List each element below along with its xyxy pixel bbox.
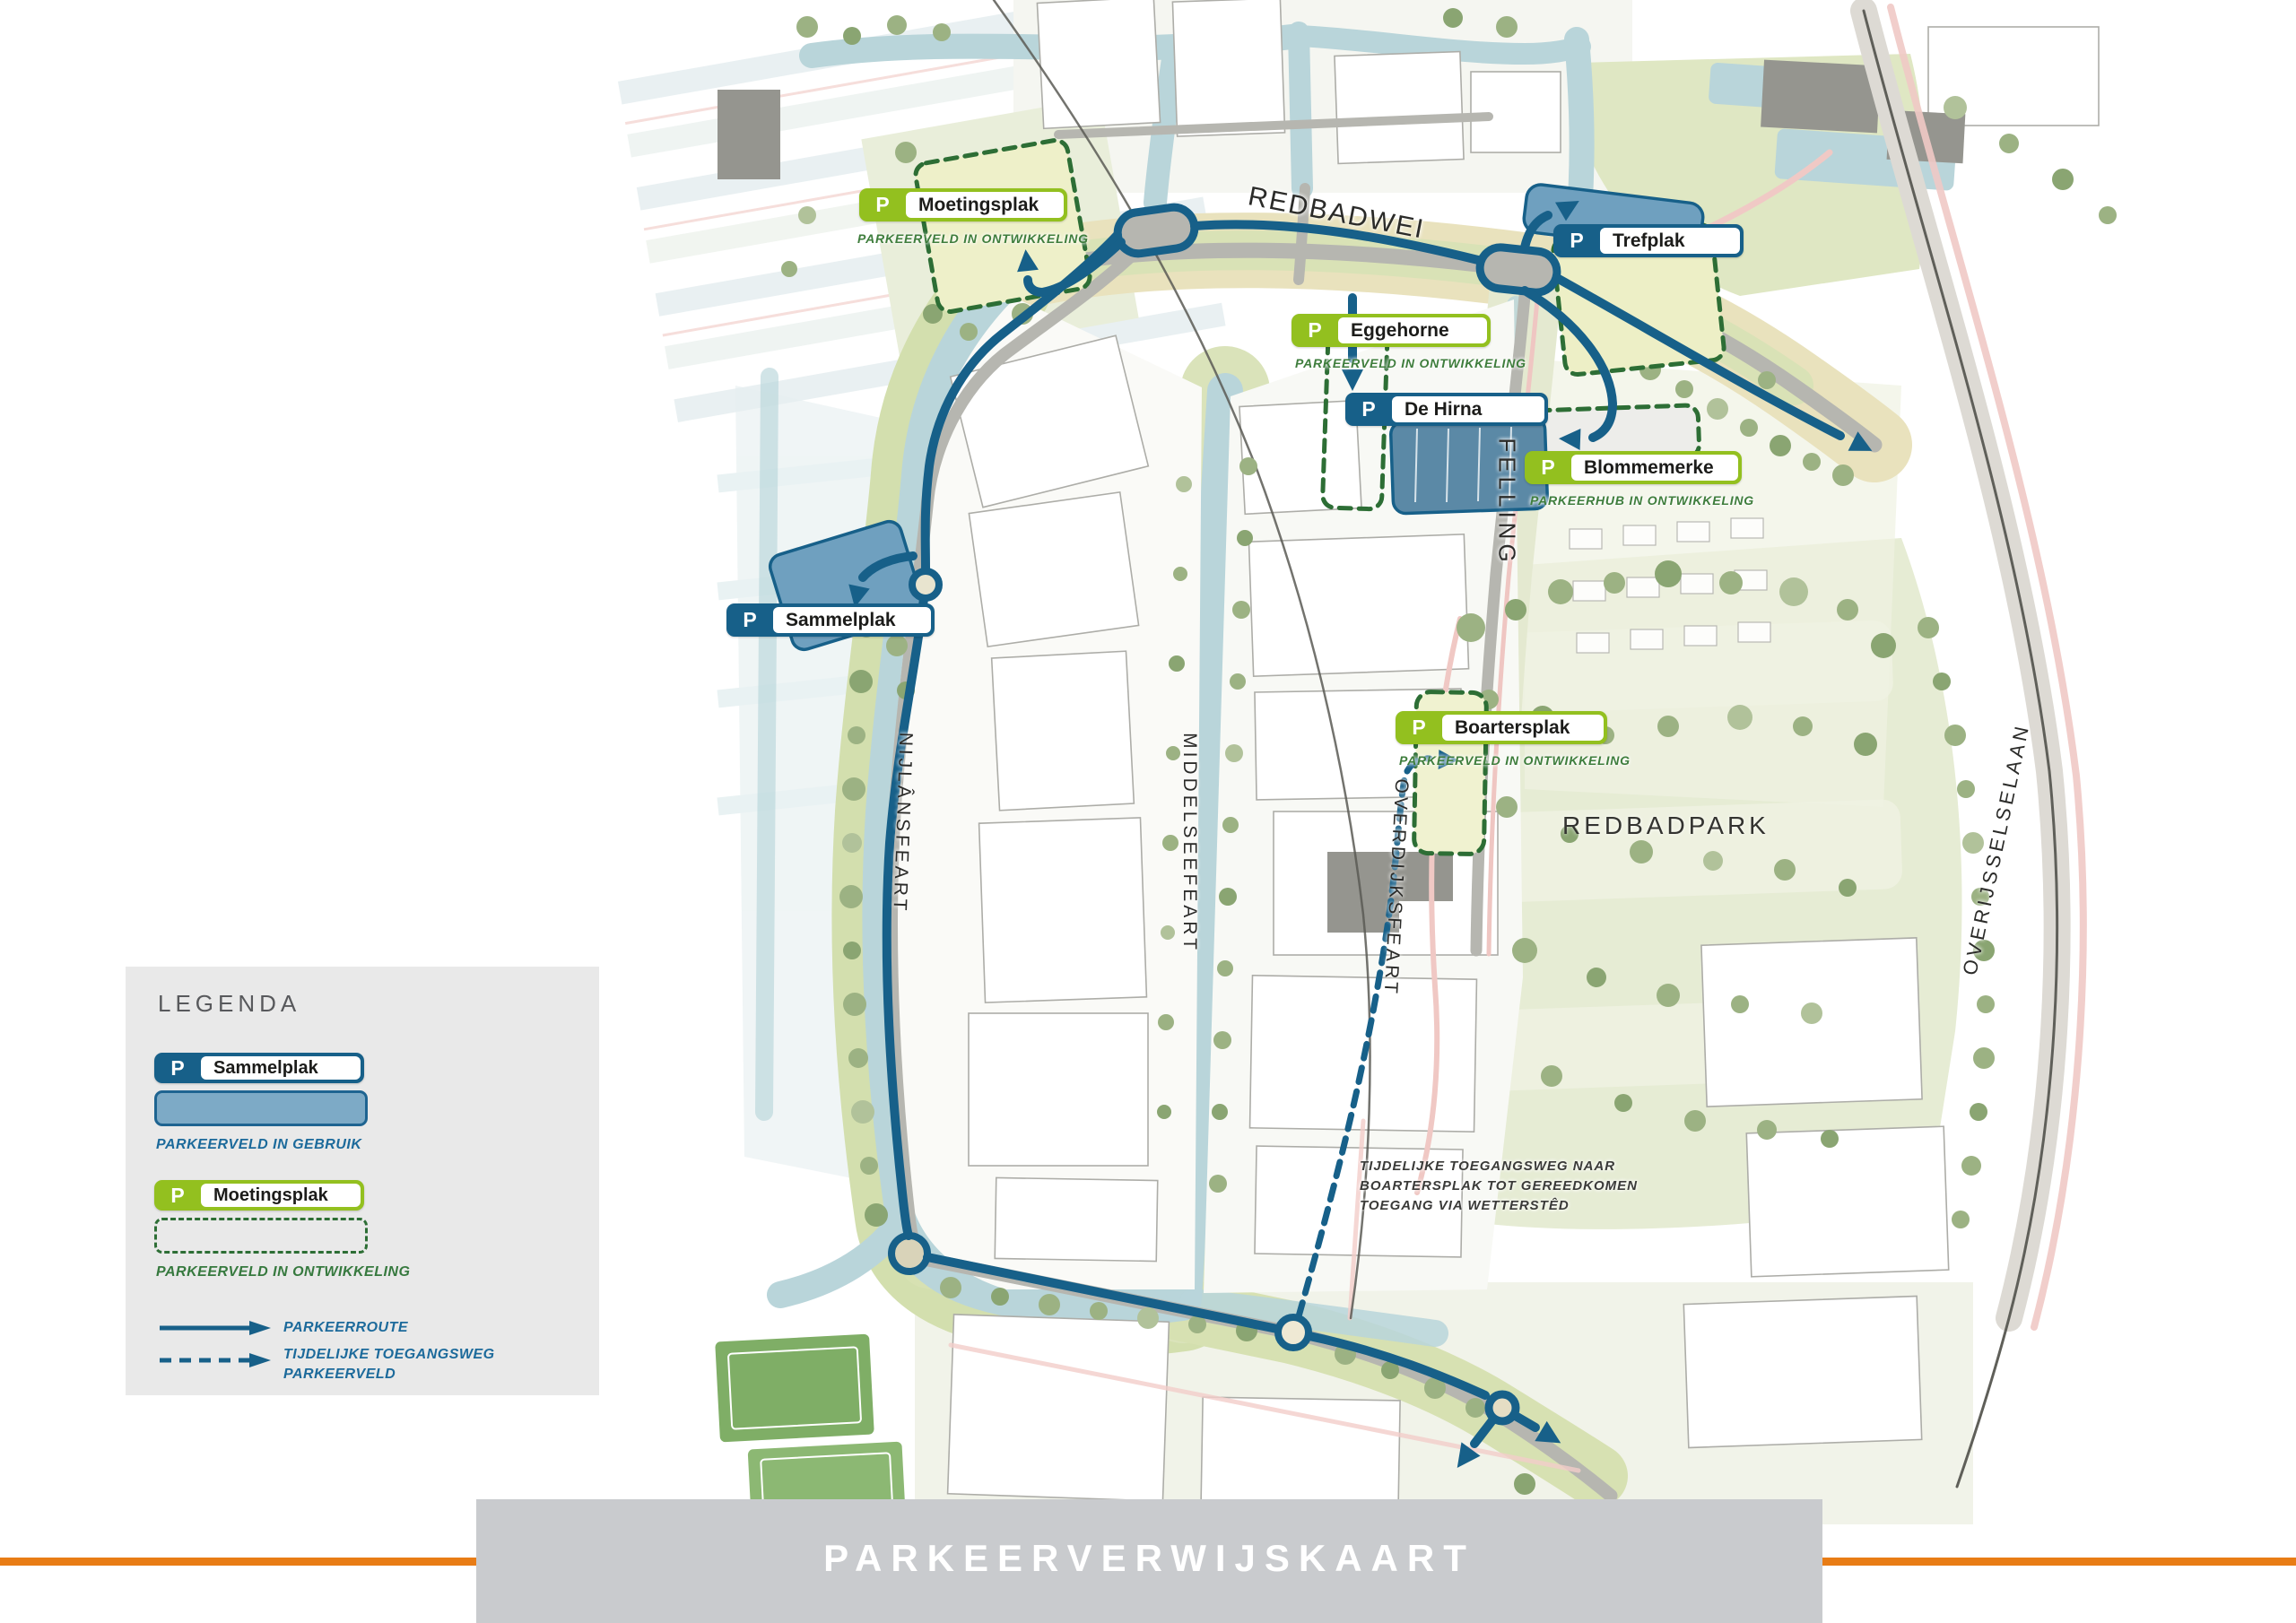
parking-name: Sammelplak [773,607,931,633]
temporary-access-arrow-icon [158,1350,276,1370]
p-badge-icon: P [726,603,773,637]
parking-label-blommemerke: P Blommemerke [1525,451,1742,484]
park-label-redbadpark: REDBADPARK [1562,811,1770,840]
parking-name: Boartersplak [1442,715,1604,741]
p-badge-icon: P [1396,711,1442,744]
note-line-2: BOARTERSPLAK TOT GEREEDKOMEN [1360,1176,1638,1196]
parking-caption-blommemerke: PARKEERHUB IN ONTWIKKELING [1530,493,1754,508]
parking-caption-moetingsplak: PARKEERVELD IN ONTWIKKELING [857,231,1089,246]
note-line-3: TOEGANG VIA WETTERSTÊD [1360,1196,1638,1216]
parking-name: Trefplak [1600,228,1740,254]
legend-heading: LEGENDA [158,990,300,1018]
legend-in-use-pill: P Sammelplak [154,1053,364,1083]
parking-label-boartersplak: P Boartersplak [1396,711,1607,744]
parking-caption-boartersplak: PARKEERVELD IN ONTWIKKELING [1399,753,1631,768]
legend-temp-route-label-2: PARKEERVELD [283,1367,396,1383]
parking-name: Blommemerke [1571,455,1738,481]
p-badge-icon: P [1553,224,1600,257]
page-title: PARKEERVERWIJSKAART [823,1537,1475,1585]
p-badge-icon: P [154,1053,201,1083]
p-badge-icon: P [1525,451,1571,484]
parkeerroute-arrow-icon [158,1318,276,1338]
legend-route-label: PARKEERROUTE [283,1320,408,1336]
legend-temp-route-label-1: TIJDELIJKE TOEGANGSWEG [283,1347,495,1363]
in-use-swatch [154,1090,368,1126]
parking-label-eggehorne: P Eggehorne [1291,314,1491,347]
legend-in-use-caption: PARKEERVELD IN GEBRUIK [156,1137,361,1153]
parking-label-moetingsplak: P Moetingsplak [859,188,1067,221]
p-badge-icon: P [154,1180,201,1211]
legend-in-use-label: Sammelplak [201,1056,361,1080]
title-banner: PARKEERVERWIJSKAART [476,1499,1822,1623]
parkeerverwijskaart-page: REDBADWEI FELLING NIJLÂNSFEART MIDDELSEE… [0,0,2296,1623]
parking-name: De Hirna [1392,396,1544,422]
parking-label-sammelplak: P Sammelplak [726,603,935,637]
street-label-middelseefeart: MIDDELSEEFEART [1178,733,1200,953]
parking-label-de-hirna: P De Hirna [1345,393,1548,426]
parking-name: Eggehorne [1338,317,1487,343]
p-badge-icon: P [1291,314,1338,347]
parking-caption-eggehorne: PARKEERVELD IN ONTWIKKELING [1295,356,1526,370]
p-badge-icon: P [1345,393,1392,426]
p-badge-icon: P [859,188,906,221]
temporary-access-note: TIJDELIJKE TOEGANGSWEG NAAR BOARTERSPLAK… [1360,1157,1638,1216]
legend-development-label: Moetingsplak [201,1184,361,1207]
street-label-felling: FELLING [1493,438,1521,566]
legend-development-caption: PARKEERVELD IN ONTWIKKELING [156,1264,410,1280]
development-swatch [154,1218,368,1254]
parking-name: Moetingsplak [906,192,1064,218]
legend-panel: LEGENDA P Sammelplak PARKEERVELD IN GEBR… [126,967,599,1395]
note-line-1: TIJDELIJKE TOEGANGSWEG NAAR [1360,1157,1638,1176]
legend-development-pill: P Moetingsplak [154,1180,364,1211]
parking-label-trefplak: P Trefplak [1553,224,1744,257]
